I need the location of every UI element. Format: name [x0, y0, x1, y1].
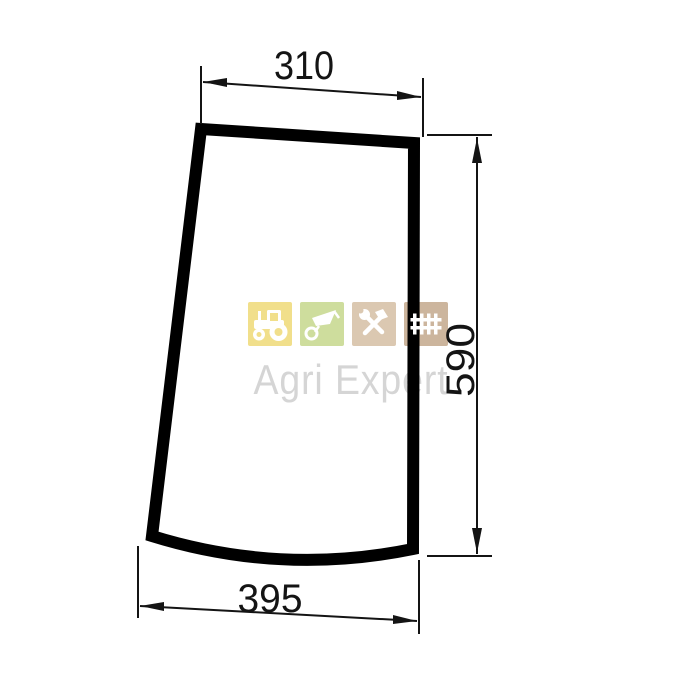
dimension-lines: [140, 82, 477, 621]
fence-picket-4: [434, 314, 438, 335]
arrow-right-top: [472, 138, 482, 163]
dimension-label-top-width: 310: [274, 44, 334, 88]
arrow-bottom-left: [140, 602, 164, 611]
wrench-notch: [358, 308, 364, 314]
drawing-canvas: Agri Expert 310 590 395: [0, 0, 700, 700]
tractor-rear-hub: [275, 328, 283, 336]
watermark-brand-text: Agri Expert: [254, 356, 449, 403]
dimension-label-bottom-width: 395: [238, 577, 303, 621]
fence-picket-1: [413, 314, 417, 335]
tractor-exhaust: [258, 311, 261, 321]
fence-picket-3: [427, 314, 431, 335]
arrow-right-bottom: [472, 528, 482, 553]
arrow-top-right: [397, 91, 421, 100]
fence-picket-2: [420, 314, 424, 335]
fence-rail-bottom: [411, 326, 442, 330]
arrow-bottom-right: [393, 615, 417, 624]
fence-rail-top: [411, 318, 442, 322]
arrow-top-left: [203, 78, 227, 87]
dimension-label-right-height: 590: [439, 323, 483, 397]
technical-drawing: Agri Expert 310 590 395: [0, 0, 700, 700]
tractor-cab-window: [270, 313, 278, 321]
tractor-front-hub: [257, 332, 262, 337]
